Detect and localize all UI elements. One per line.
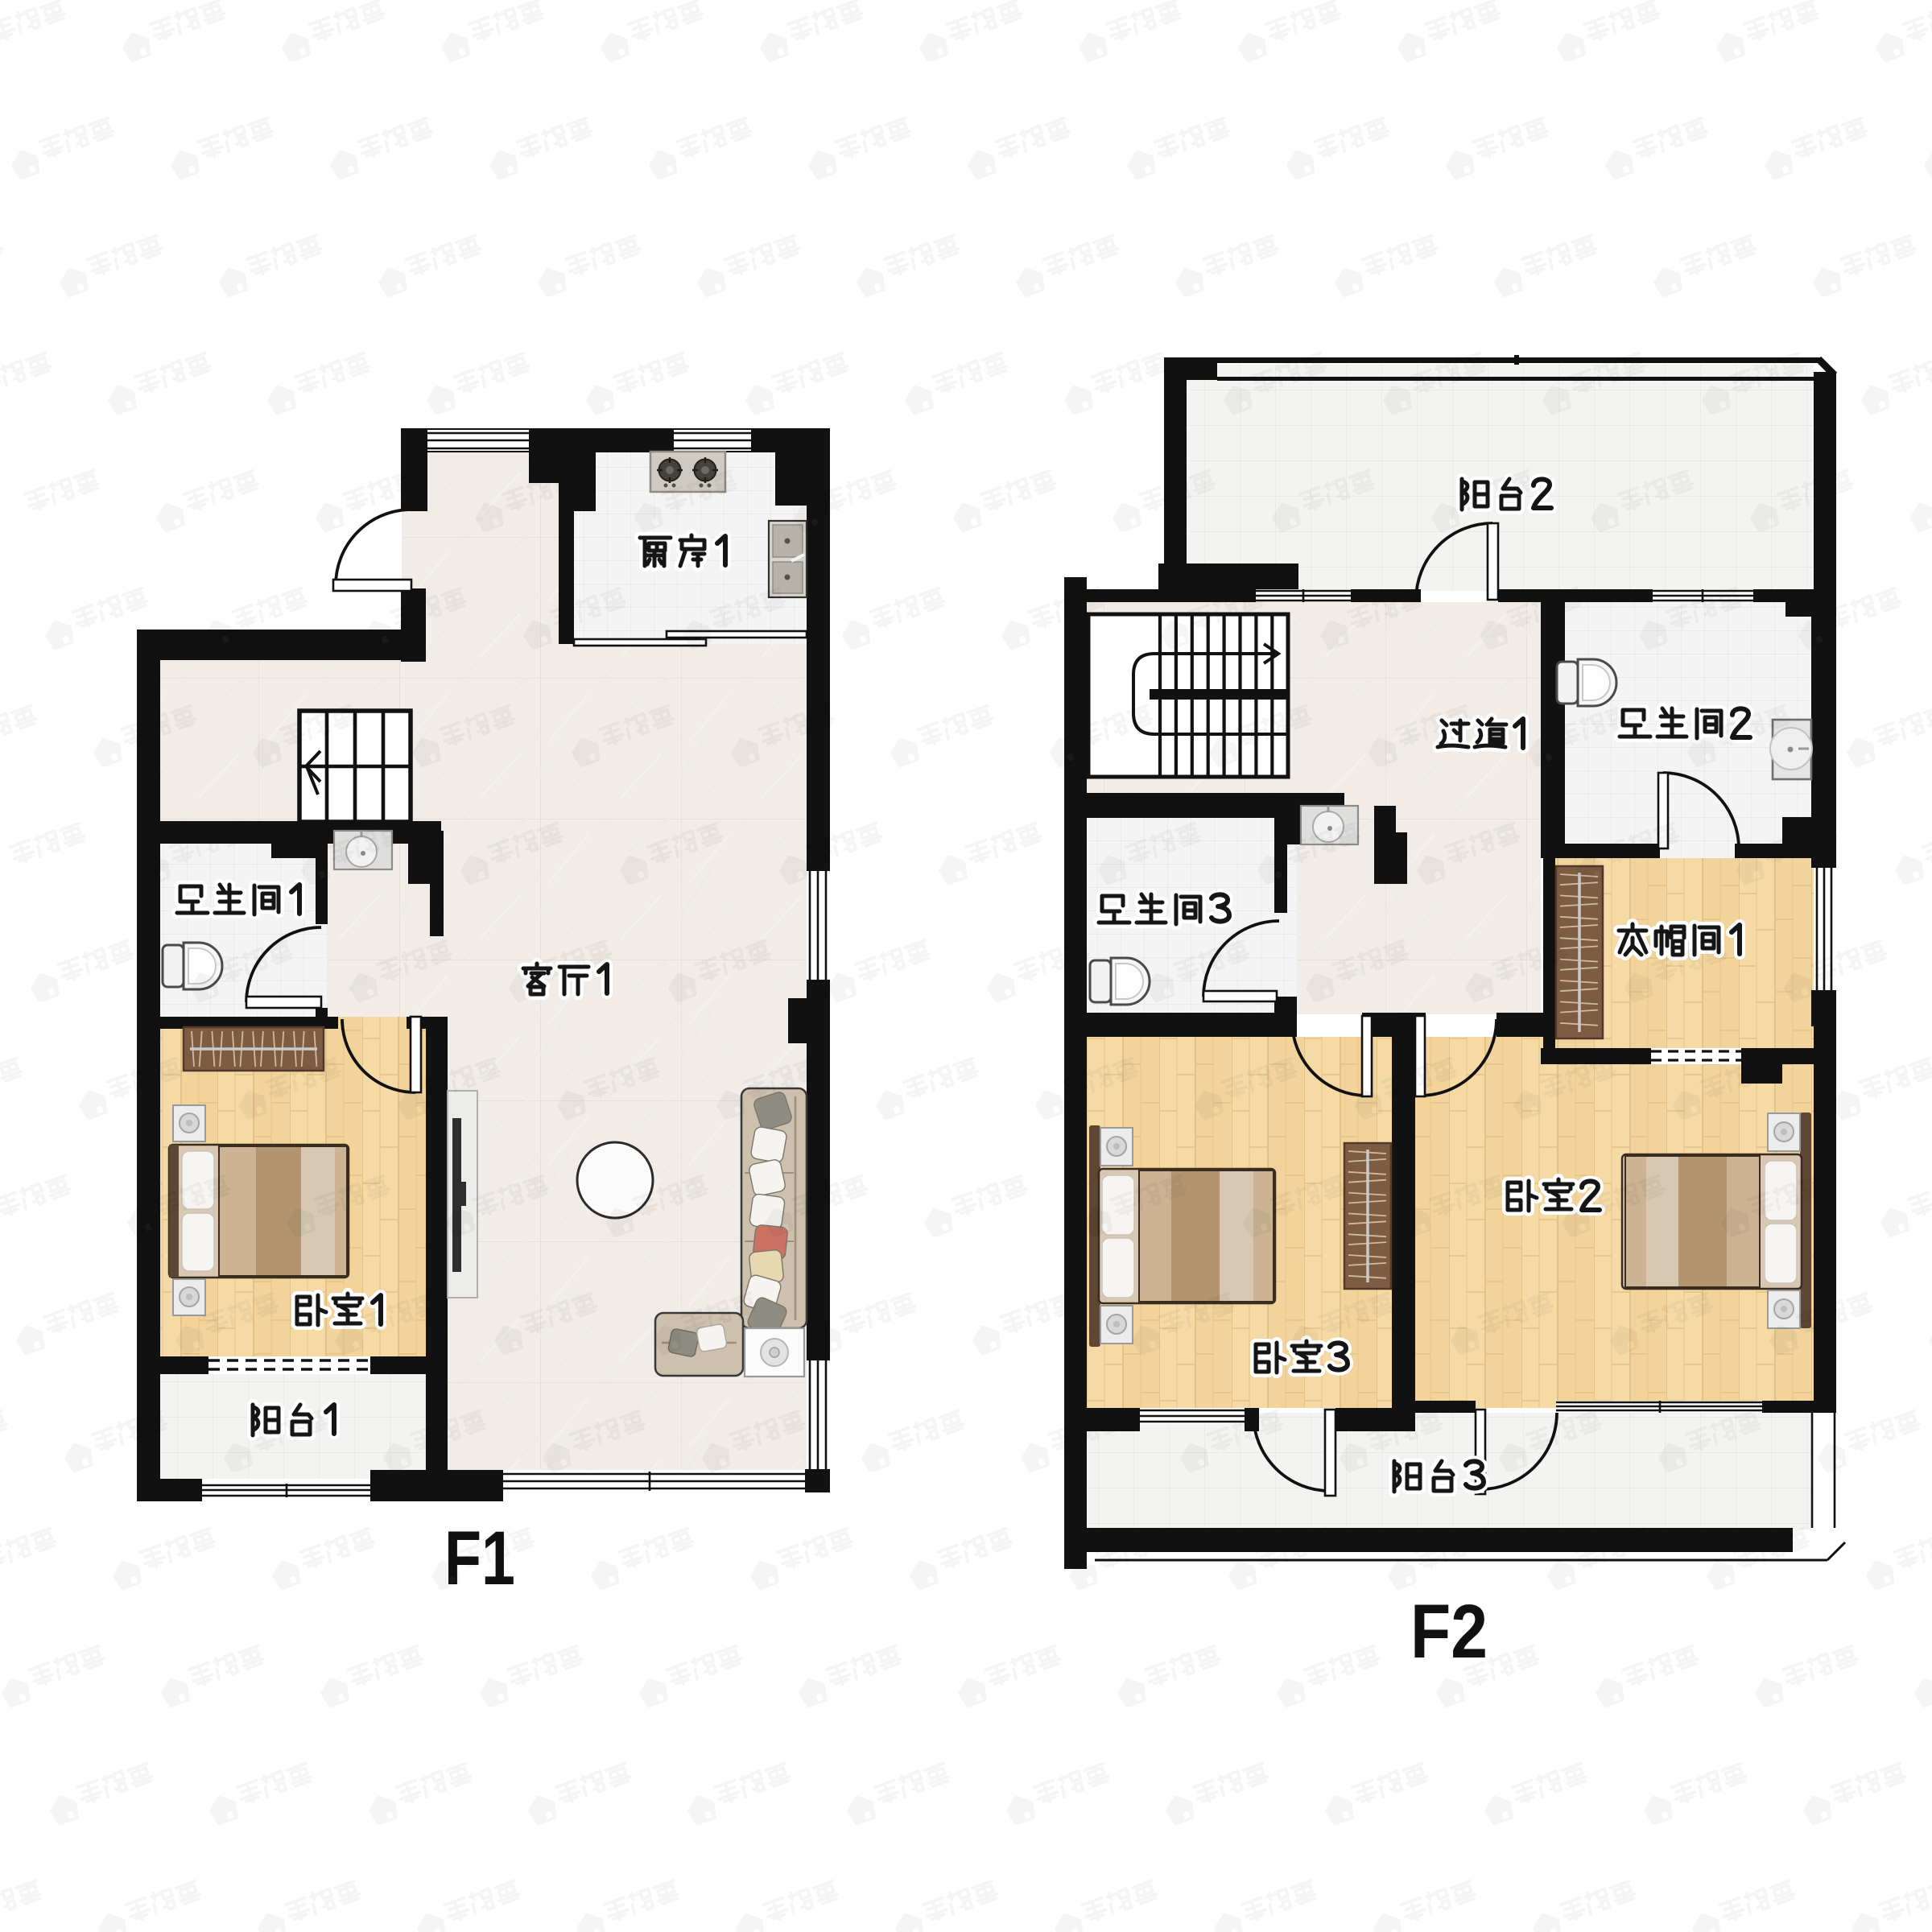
svg-text:F2: F2 — [1410, 1589, 1488, 1674]
